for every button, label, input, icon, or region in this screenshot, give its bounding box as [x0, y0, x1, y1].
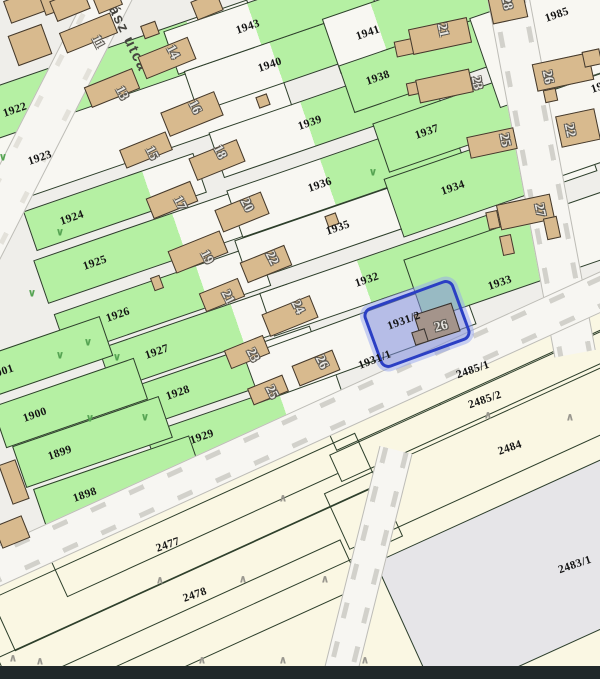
- grass-symbol: ∧: [156, 574, 165, 587]
- bottom-black-bar: [0, 666, 600, 679]
- grass-symbol: ∧: [321, 573, 330, 586]
- grass-symbol: ∧: [239, 573, 248, 586]
- building: [8, 24, 53, 66]
- house-number-25: 25: [496, 132, 514, 149]
- grass-symbol: ∧: [9, 652, 18, 665]
- house-number-27: 27: [531, 202, 549, 219]
- grass-symbol: ∧: [566, 411, 575, 424]
- grass-symbol: ∧: [279, 492, 288, 505]
- house-number-22: 22: [561, 122, 579, 139]
- building: [3, 0, 47, 24]
- house-number-26: 26: [539, 69, 557, 86]
- building: [542, 87, 557, 102]
- building: [582, 48, 600, 67]
- vegetation-symbol: ∨: [56, 226, 65, 239]
- house-number-21: 21: [434, 22, 452, 39]
- vegetation-symbol: ∨: [56, 349, 65, 362]
- grass-symbol: ∧: [279, 654, 288, 667]
- vegetation-symbol: ∨: [84, 336, 93, 349]
- grass-symbol: ∧: [198, 654, 207, 667]
- vegetation-symbol: ∨: [0, 151, 7, 164]
- house-number-23: 23: [468, 75, 486, 92]
- vegetation-symbol: ∨: [113, 351, 122, 364]
- vegetation-symbol: ∨: [28, 287, 37, 300]
- grass-symbol: ∧: [484, 409, 493, 422]
- vegetation-symbol: ∨: [369, 166, 378, 179]
- vegetation-symbol: ∨: [86, 412, 95, 425]
- cadastral-map-canvas[interactable]: zsász utca 19221923192419251926192719281…: [0, 0, 600, 679]
- grass-symbol: ∧: [361, 654, 370, 667]
- vegetation-symbol: ∨: [141, 411, 150, 424]
